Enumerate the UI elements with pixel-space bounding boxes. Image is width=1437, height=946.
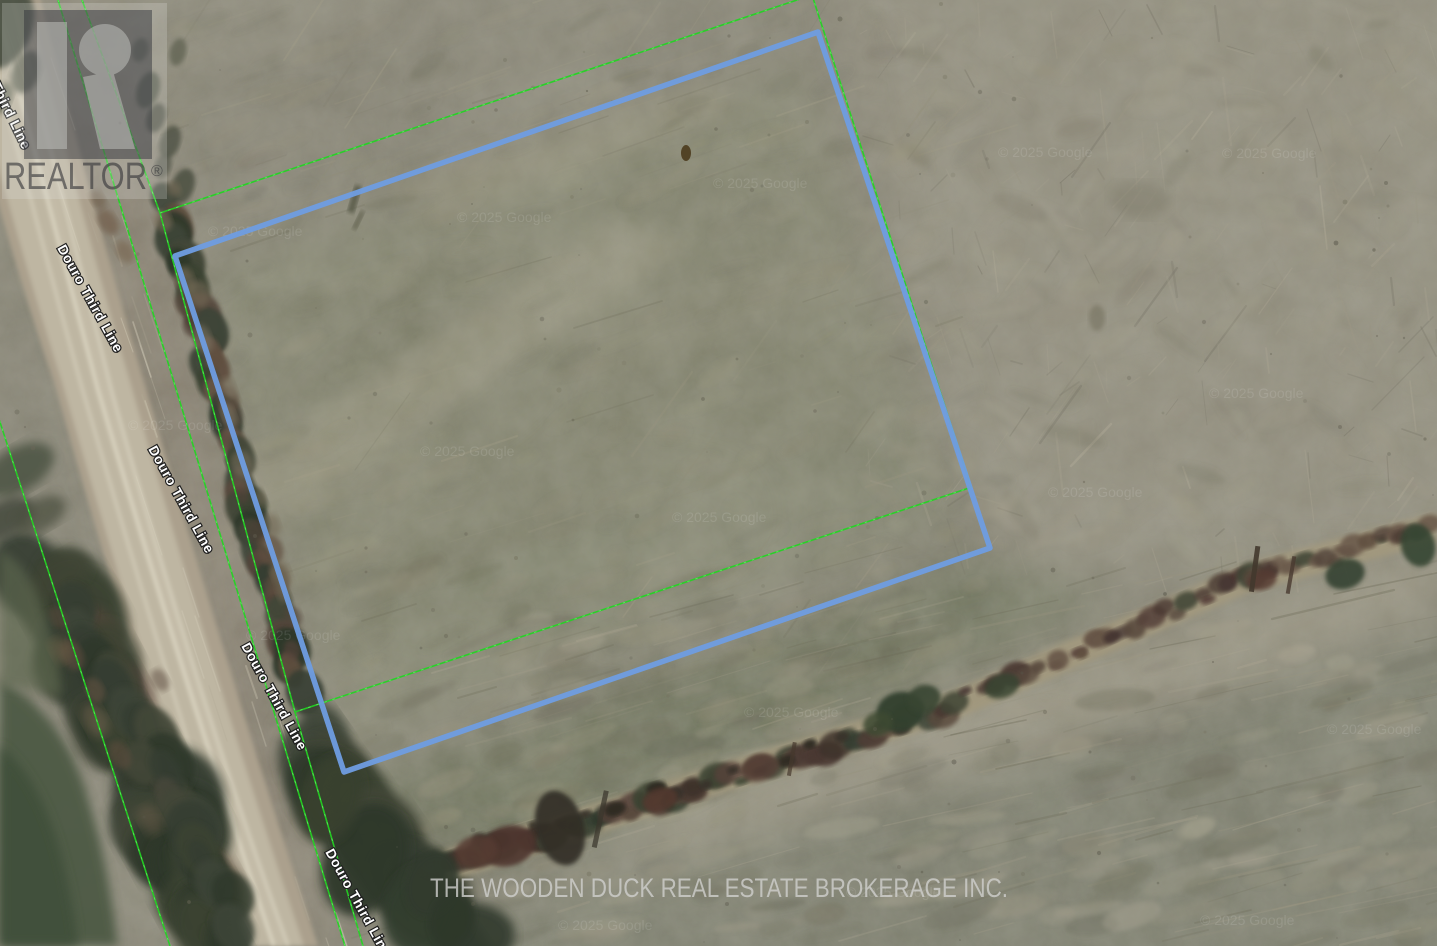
svg-text:© 2025 Google: © 2025 Google — [713, 175, 808, 191]
svg-text:© 2025 Google: © 2025 Google — [1222, 145, 1317, 161]
svg-text:© 2025 Google: © 2025 Google — [998, 144, 1093, 160]
svg-text:© 2025 Google: © 2025 Google — [1048, 484, 1143, 500]
svg-text:© 2025 Google: © 2025 Google — [1200, 912, 1295, 928]
svg-text:®: ® — [151, 163, 163, 180]
svg-text:© 2025 Google: © 2025 Google — [1327, 721, 1422, 737]
svg-text:© 2025 Google: © 2025 Google — [672, 509, 767, 525]
svg-text:© 2025 Google: © 2025 Google — [420, 443, 515, 459]
svg-text:© 2025 Google: © 2025 Google — [246, 627, 341, 643]
svg-text:REALTOR: REALTOR — [4, 156, 147, 198]
svg-text:© 2025 Google: © 2025 Google — [457, 209, 552, 225]
svg-text:© 2025 Google: © 2025 Google — [1209, 385, 1304, 401]
svg-text:© 2025 Google: © 2025 Google — [744, 704, 839, 720]
svg-text:© 2025 Google: © 2025 Google — [558, 917, 653, 933]
svg-text:© 2025 Google: © 2025 Google — [128, 417, 223, 433]
svg-text:THE WOODEN DUCK REAL ESTATE BR: THE WOODEN DUCK REAL ESTATE BROKERAGE IN… — [430, 873, 1008, 903]
